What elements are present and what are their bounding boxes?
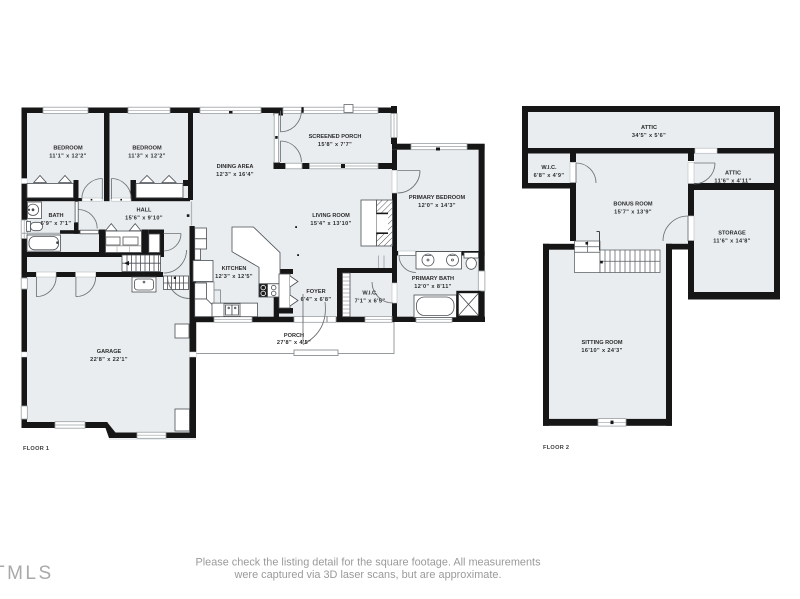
svg-text:15'6" x 9'10": 15'6" x 9'10" <box>125 216 163 222</box>
svg-text:16'10" x 24'3": 16'10" x 24'3" <box>581 348 622 354</box>
svg-text:27'8" x 4'5": 27'8" x 4'5" <box>277 340 311 346</box>
svg-text:FLOOR 1: FLOOR 1 <box>23 446 49 452</box>
svg-text:22'8" x 22'1": 22'8" x 22'1" <box>90 357 128 363</box>
svg-text:6'9" x 7'1": 6'9" x 7'1" <box>41 221 72 227</box>
svg-text:PRIMARY BATH: PRIMARY BATH <box>412 276 454 282</box>
svg-text:FLOOR 2: FLOOR 2 <box>543 445 569 451</box>
svg-text:ATTIC: ATTIC <box>725 171 741 177</box>
svg-text:11'6" x 4'11": 11'6" x 4'11" <box>714 179 751 185</box>
svg-text:STORAGE: STORAGE <box>718 230 746 236</box>
svg-text:PRIMARY BEDROOM: PRIMARY BEDROOM <box>409 195 466 201</box>
svg-text:11'1" x 12'2": 11'1" x 12'2" <box>49 154 86 160</box>
svg-text:PORCH: PORCH <box>284 333 304 339</box>
svg-text:BEDROOM: BEDROOM <box>132 146 162 152</box>
svg-text:12'3" x 16'4": 12'3" x 16'4" <box>216 172 254 178</box>
svg-text:GARAGE: GARAGE <box>97 349 122 355</box>
svg-text:BEDROOM: BEDROOM <box>53 146 83 152</box>
svg-text:were captured via 3D laser sca: were captured via 3D laser scans, but ar… <box>234 569 502 581</box>
svg-text:12'0" x 14'3": 12'0" x 14'3" <box>418 203 456 209</box>
svg-text:6'4" x 6'8": 6'4" x 6'8" <box>301 297 332 303</box>
svg-text:DINING AREA: DINING AREA <box>217 164 254 170</box>
svg-text:SCREENED PORCH: SCREENED PORCH <box>309 134 362 140</box>
svg-text:Please check the listing detai: Please check the listing detail for the … <box>195 557 541 569</box>
svg-text:7'1" x 6'5": 7'1" x 6'5" <box>355 299 386 305</box>
svg-text:11'3" x 12'2": 11'3" x 12'2" <box>128 154 165 160</box>
svg-text:15'8" x 7'7": 15'8" x 7'7" <box>318 142 352 148</box>
svg-text:HALL: HALL <box>137 208 152 214</box>
svg-text:W.I.C.: W.I.C. <box>541 165 557 171</box>
svg-text:BATH: BATH <box>48 213 63 219</box>
svg-text:SITTING ROOM: SITTING ROOM <box>581 340 622 346</box>
svg-text:W.I.C.: W.I.C. <box>362 291 378 297</box>
svg-text:BONUS ROOM: BONUS ROOM <box>613 201 652 207</box>
svg-text:ATTIC: ATTIC <box>641 125 657 131</box>
svg-text:KITCHEN: KITCHEN <box>222 266 247 272</box>
svg-text:LIVING ROOM: LIVING ROOM <box>312 213 350 219</box>
svg-text:34'5" x 5'6": 34'5" x 5'6" <box>632 133 666 139</box>
svg-text:12'3" x 12'5": 12'3" x 12'5" <box>215 274 253 280</box>
svg-text:12'0" x 8'11": 12'0" x 8'11" <box>414 284 451 290</box>
svg-text:15'7" x 13'9": 15'7" x 13'9" <box>614 210 652 216</box>
svg-text:15'4" x 13'10": 15'4" x 13'10" <box>310 221 351 227</box>
svg-text:6'8" x 4'9": 6'8" x 4'9" <box>534 173 565 179</box>
svg-text:TMLS: TMLS <box>0 563 54 584</box>
svg-text:11'6" x 14'8": 11'6" x 14'8" <box>713 239 750 245</box>
svg-text:FOYER: FOYER <box>306 289 325 295</box>
